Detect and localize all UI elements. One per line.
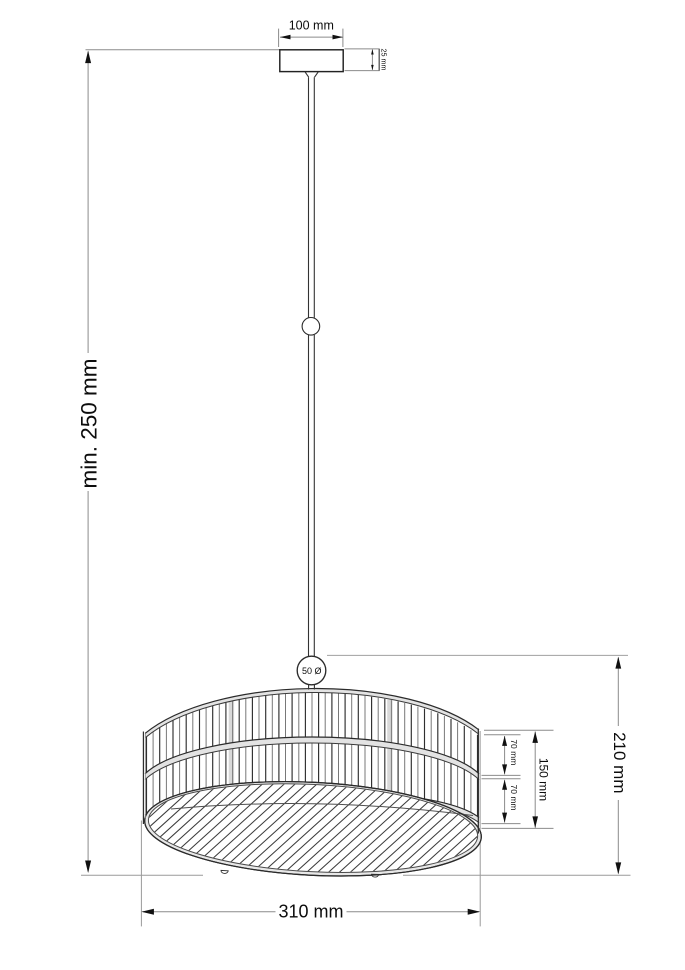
svg-text:150 mm: 150 mm [537, 758, 551, 801]
svg-text:50 Ø: 50 Ø [302, 666, 322, 676]
svg-text:310 mm: 310 mm [278, 902, 343, 922]
svg-text:210 mm: 210 mm [610, 732, 629, 793]
svg-text:70 mm: 70 mm [509, 785, 519, 811]
svg-text:70 mm: 70 mm [509, 739, 519, 765]
svg-text:25 mm: 25 mm [379, 49, 388, 71]
svg-text:min. 250 mm: min. 250 mm [76, 358, 101, 488]
svg-text:100 mm: 100 mm [289, 19, 334, 33]
